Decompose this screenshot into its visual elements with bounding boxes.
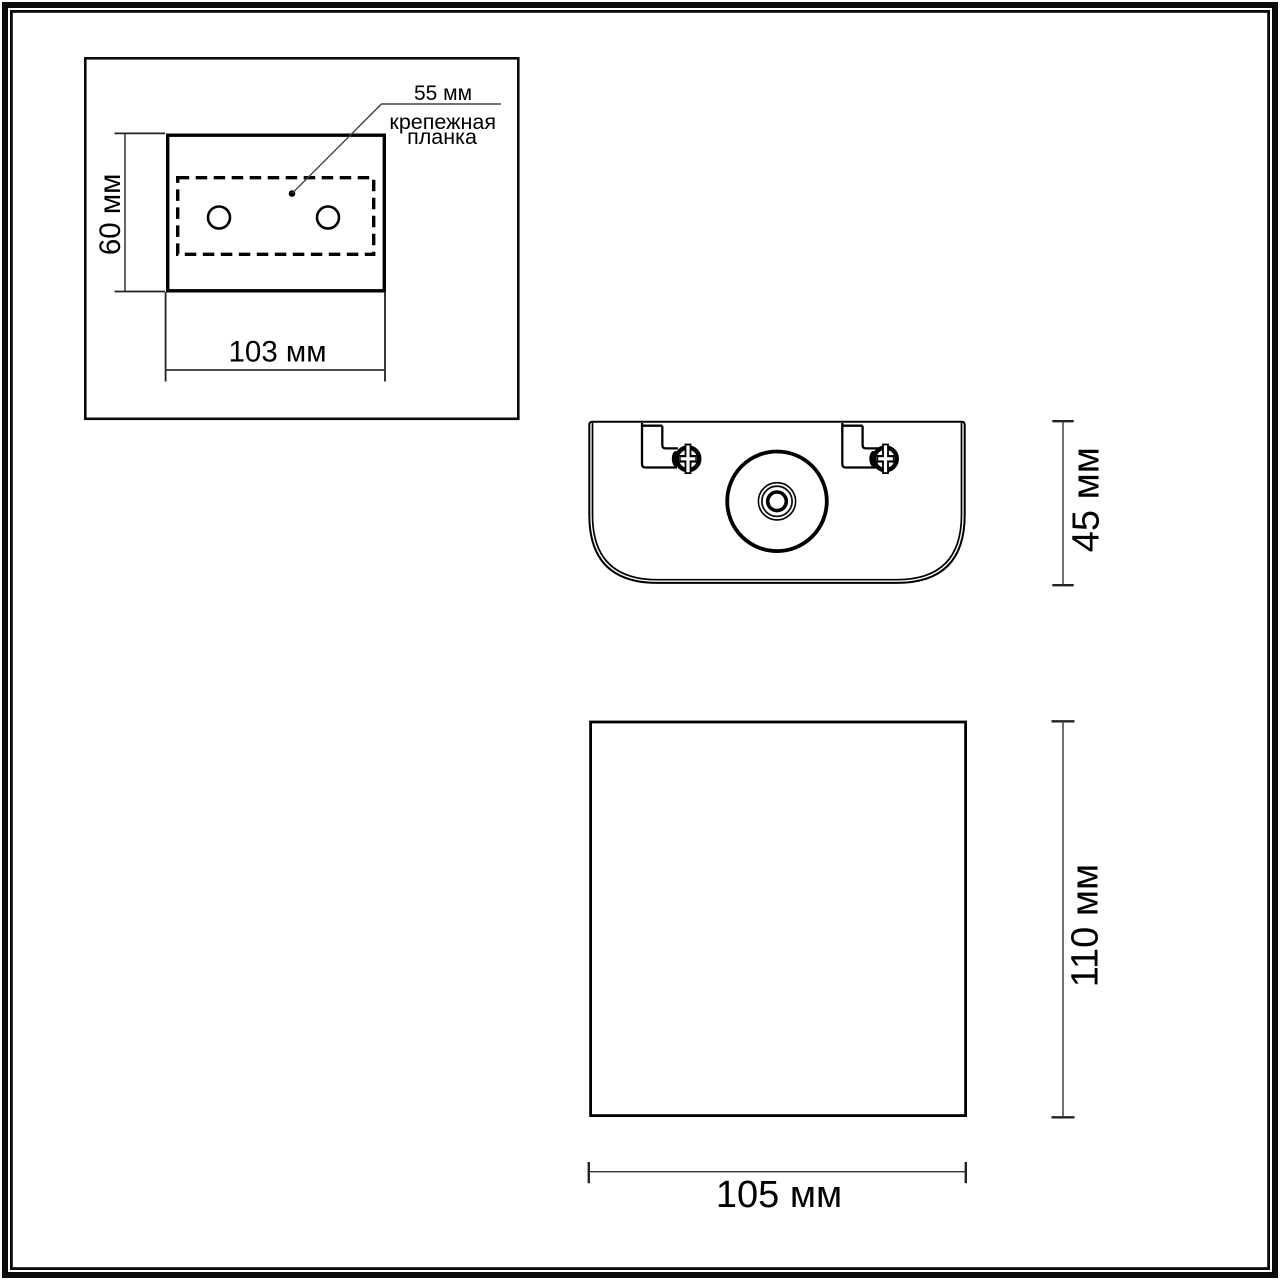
svg-text:60 мм: 60 мм xyxy=(94,174,127,256)
svg-text:55 мм: 55 мм xyxy=(414,82,472,105)
svg-text:110 мм: 110 мм xyxy=(1065,864,1107,987)
svg-text:планка: планка xyxy=(407,125,477,149)
svg-text:45 мм: 45 мм xyxy=(1066,447,1108,552)
svg-text:105 мм: 105 мм xyxy=(716,1174,842,1216)
svg-text:103 мм: 103 мм xyxy=(229,335,327,368)
